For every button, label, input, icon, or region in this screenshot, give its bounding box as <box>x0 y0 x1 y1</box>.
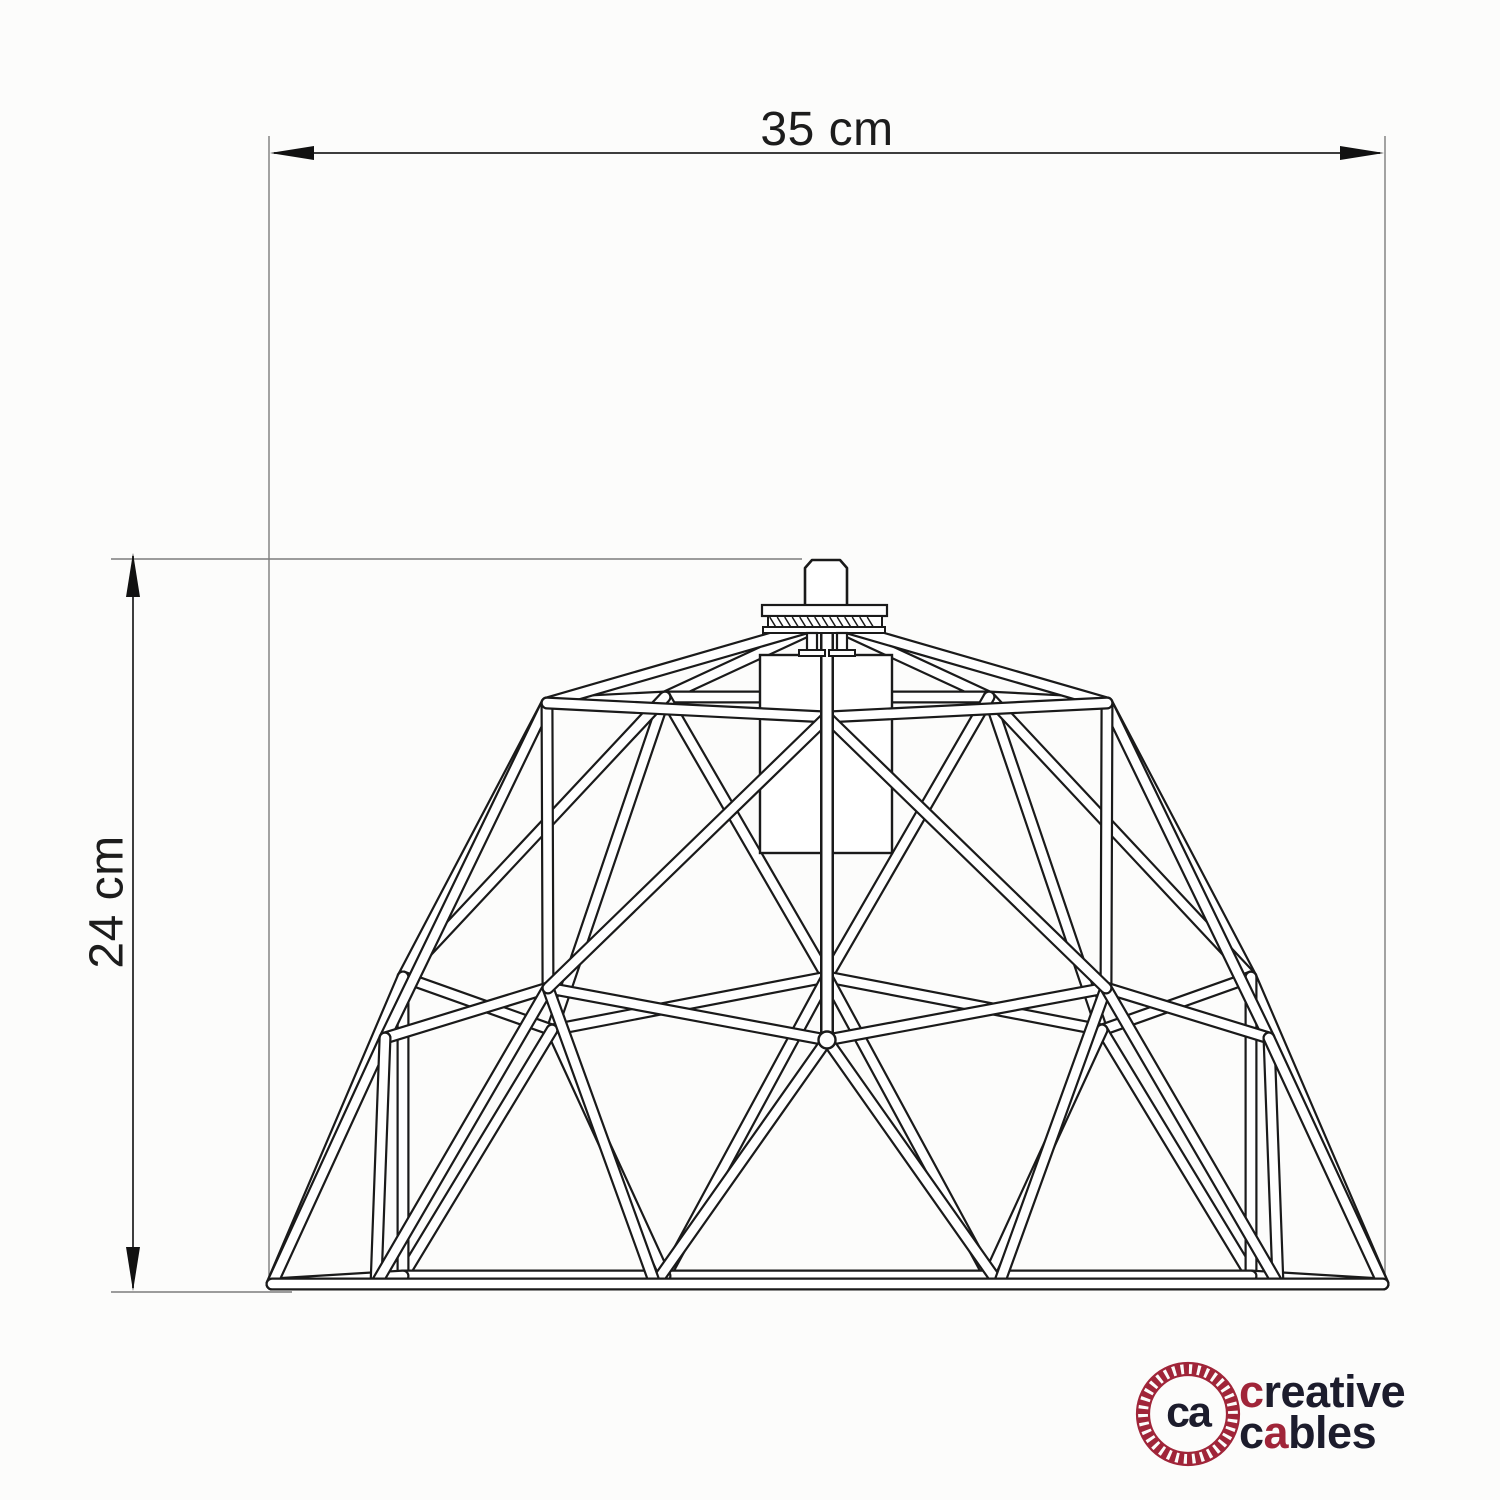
dome-strut <box>1269 1038 1383 1284</box>
wordmark-letter-2: c <box>1239 1407 1264 1458</box>
drawing-svg <box>0 0 1500 1500</box>
dome-strut <box>547 703 548 988</box>
width-dimension-label: 35 cm <box>760 102 893 157</box>
dome-strut <box>1106 703 1107 988</box>
dome-strut <box>548 988 655 1284</box>
dome-strut <box>552 977 827 1030</box>
arrowhead-down-icon <box>126 1247 140 1291</box>
flange-top-bar <box>762 605 887 616</box>
center-hub-joint <box>819 1032 836 1049</box>
arrowhead-right-icon <box>1340 146 1384 160</box>
dome-strut <box>403 1030 552 1276</box>
dome-strut <box>827 1040 999 1284</box>
central-stem <box>819 610 836 1049</box>
logo-monogram: ca <box>1166 1389 1210 1438</box>
dome-strut <box>655 1040 827 1284</box>
dome-strut <box>827 988 1106 1040</box>
cable-entry-cap <box>805 560 847 607</box>
dome-strut <box>552 697 665 1030</box>
dome-strut <box>989 697 1102 1030</box>
dome-strut <box>272 1038 385 1284</box>
height-dimension-label: 24 cm <box>80 835 135 968</box>
socket-foot-left <box>799 650 825 656</box>
dome-strut <box>385 703 547 1038</box>
wordmark-accent-letter-2: a <box>1264 1407 1289 1458</box>
logo-wordmark-line1: creative <box>1239 1371 1405 1412</box>
logo-wordmark: creative cables <box>1239 1371 1405 1453</box>
technical-drawing-canvas: 35 cm 24 cm ca creative cables <box>0 0 1500 1500</box>
dome-strut <box>827 977 1102 1030</box>
dome-strut <box>548 988 827 1040</box>
wordmark-rest-2: bles <box>1288 1407 1376 1458</box>
dome-strut <box>999 988 1106 1284</box>
socket-foot-right <box>829 650 855 656</box>
arrowhead-left-icon <box>270 146 314 160</box>
dome-strut <box>1102 1030 1251 1276</box>
flange-bottom-bar <box>763 627 885 633</box>
logo-wordmark-line2: cables <box>1239 1412 1405 1453</box>
dome-strut <box>1107 703 1269 1038</box>
